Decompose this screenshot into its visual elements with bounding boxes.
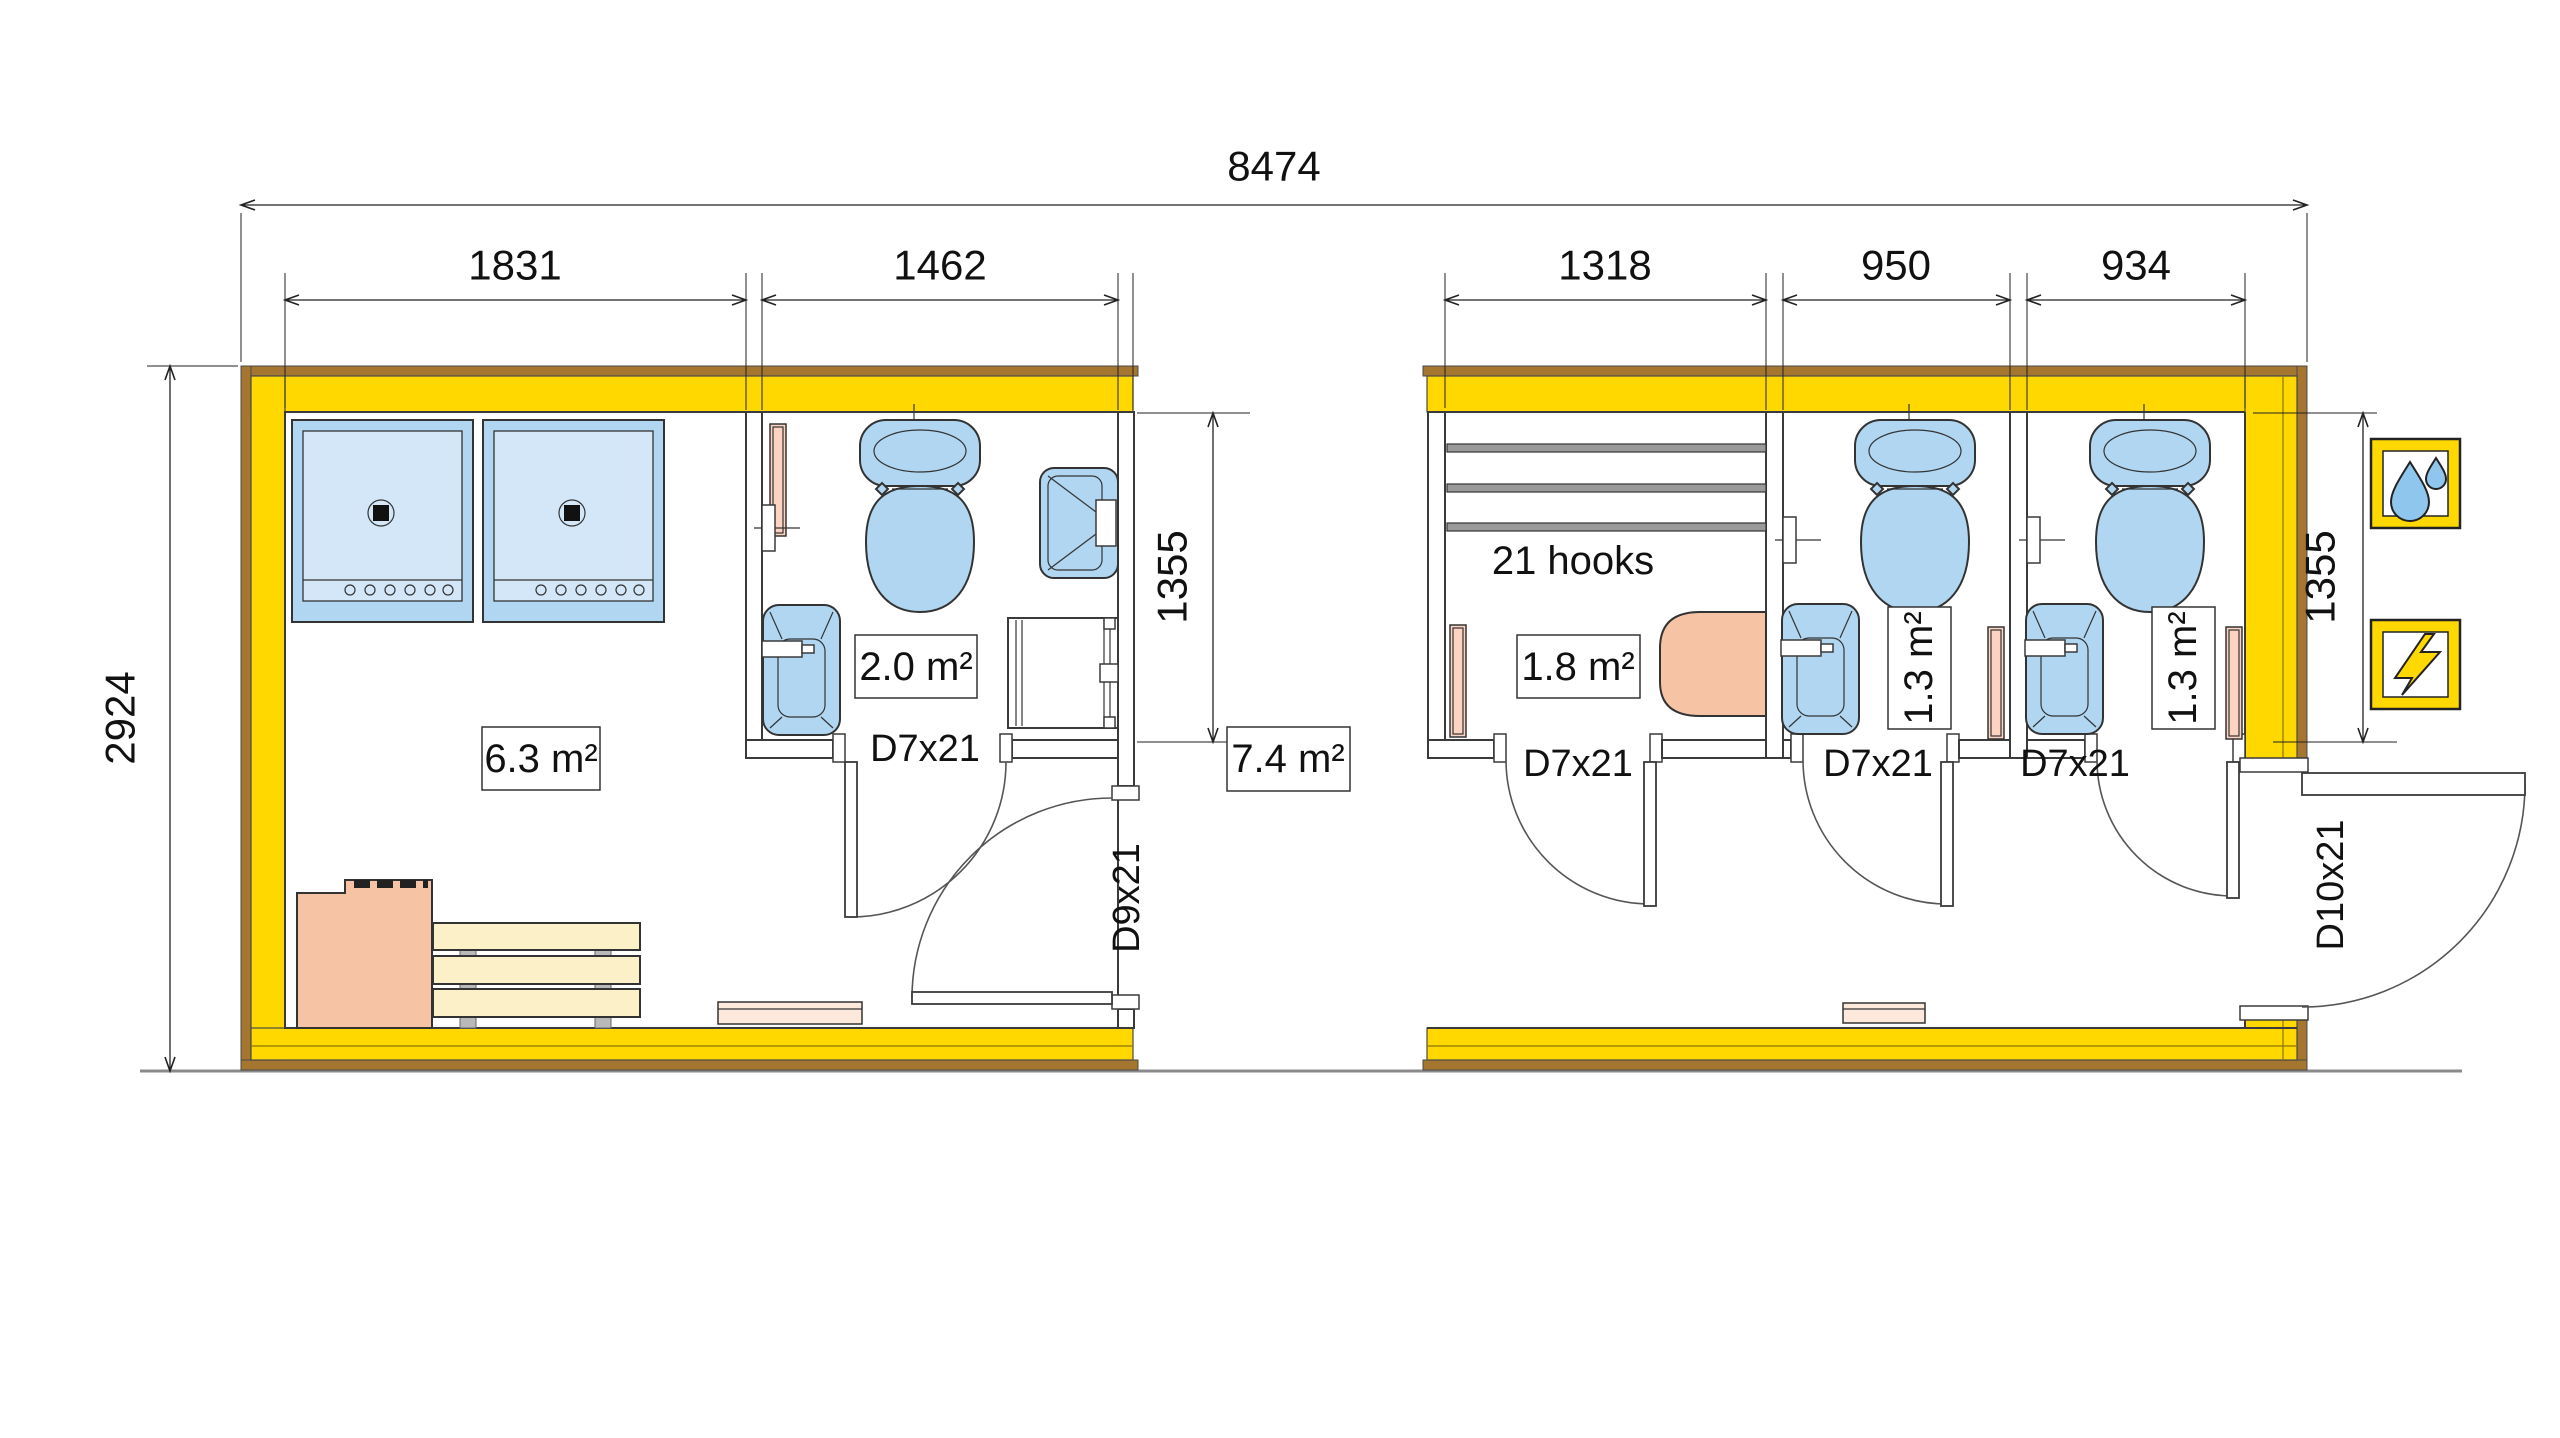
wc-cabin-1-door-label: D7x21 [1823, 743, 1933, 785]
drain-icon [373, 505, 389, 521]
shower-tray-2 [483, 420, 664, 622]
partition-wc1-wc2 [2010, 412, 2027, 758]
dim-overall-depth: 2924 [97, 671, 144, 764]
radiator-bottom-left [718, 1002, 862, 1024]
floor-plan-page: 8474 1831 1462 1318 950 934 2924 1355 [0, 0, 2560, 1438]
wc1-front-wall-left [1783, 740, 1791, 758]
changing-room-door-label: D7x21 [1523, 743, 1633, 785]
radiator-changing-room [1450, 625, 1466, 737]
dim-shower-room-width: 1831 [468, 242, 561, 289]
dim-wc-room-width: 1462 [893, 242, 986, 289]
faucet-knob [802, 645, 814, 653]
right-module-wall-top [1427, 376, 2297, 412]
wc-cabin-2-area-label: 1.3 m² [2161, 611, 2205, 724]
dim-room-depth-right: 1355 [2297, 530, 2344, 623]
left-module-joint-wall-lower [1118, 1009, 1134, 1028]
right-module-joint-wall [1428, 412, 1445, 758]
changing-room-area-label: 1.8 m² [1521, 645, 1634, 689]
faucet [2025, 640, 2065, 656]
water-connection-symbol [2371, 439, 2460, 528]
dim-room-depth-left: 1355 [1149, 530, 1196, 623]
floor-plan-drawing: 8474 1831 1462 1318 950 934 2924 1355 [0, 0, 2560, 1438]
dim-overall-width: 8474 [1227, 143, 1320, 190]
left-module [241, 366, 1139, 1070]
shower-tray-1 [292, 420, 473, 622]
inner-door-jamb-top [1112, 786, 1139, 800]
faucet-knob [1821, 644, 1833, 652]
left-module-outer-wall-bottom [241, 1060, 1138, 1070]
inner-entrance-door-label: D9x21 [1106, 843, 1148, 953]
sink-wc2 [2025, 604, 2103, 734]
changing-door-leaf [1644, 762, 1656, 906]
right-module-outer-wall-top [1423, 366, 2307, 376]
left-module-outer-wall-top [241, 366, 1138, 376]
right-module [1423, 366, 2525, 1070]
wc-door-leaf [845, 762, 857, 917]
wc-door-jamb-left [833, 734, 845, 762]
changing-room-front-wall-right [1662, 740, 1766, 758]
wc1-door-jamb-right [1947, 734, 1959, 762]
hooks-label: 21 hooks [1492, 539, 1654, 583]
right-module-wall-right-upper [2245, 376, 2297, 770]
urinal [1040, 468, 1118, 578]
bench-slat [433, 923, 640, 950]
toilet-wc-room [860, 404, 980, 612]
main-entrance-door-label: D10x21 [2310, 820, 2352, 951]
changing-door-jamb-right [1650, 734, 1662, 762]
radiator-wc2 [2226, 627, 2242, 739]
corridor-area-label: 7.4 m² [1231, 737, 1344, 781]
main-door-leaf [2302, 773, 2525, 795]
wc-cabin-1-area-label: 1.3 m² [1897, 611, 1941, 724]
right-module-outer-wall-bottom [1423, 1060, 2307, 1070]
wc-room-partition [746, 412, 762, 758]
wc-room-door-label: D7x21 [870, 728, 980, 770]
wc-room-area-label: 2.0 m² [859, 645, 972, 689]
toilet-wc2 [2090, 404, 2210, 612]
right-module-wall-bottom [1427, 1028, 2297, 1060]
heater-unit [297, 880, 432, 1028]
wc-room-front-wall-right [1012, 740, 1118, 758]
sink-wc-room [762, 605, 840, 735]
dim-changing-room-width: 1318 [1558, 242, 1651, 289]
wc-cabin-2-door-label: D7x21 [2020, 743, 2130, 785]
inner-door-jamb-bottom [1112, 995, 1139, 1009]
urinal-flush-unit [1096, 500, 1116, 546]
wc1-front-wall-right [1959, 740, 2010, 758]
left-module-wall-left [251, 376, 285, 1060]
toilet-wc1 [1855, 404, 1975, 612]
wc-door-jamb-right [1000, 734, 1012, 762]
shower-room-area-label: 6.3 m² [484, 737, 597, 781]
faucet [762, 641, 802, 657]
radiator-wc1 [1988, 627, 2004, 739]
changing-room-seat [1660, 612, 1766, 716]
wc1-door-leaf [1941, 762, 1953, 906]
drain-icon [564, 505, 580, 521]
main-door-jamb-top [2240, 758, 2308, 772]
boiler-cabinet [1008, 618, 1118, 728]
left-module-outer-wall-left [241, 366, 251, 1070]
left-module-joint-wall-upper [1118, 412, 1134, 786]
sink-wc1 [1781, 604, 1859, 734]
bench [433, 923, 640, 1028]
bench-slat [433, 956, 640, 984]
main-door-jamb-bottom [2240, 1006, 2308, 1020]
partition-changing-wc1 [1766, 412, 1783, 758]
changing-door-jamb-left [1494, 734, 1506, 762]
left-module-wall-top [251, 376, 1133, 412]
wc1-door-jamb-left [1791, 734, 1803, 762]
faucet [1781, 640, 1821, 656]
dim-wc-cabin-1-width: 950 [1861, 242, 1931, 289]
faucet-knob [2065, 644, 2077, 652]
bench-slat [433, 989, 640, 1017]
electricity-connection-symbol [2371, 620, 2460, 709]
toilet-bowl [866, 486, 974, 612]
wc2-door-leaf [2227, 762, 2239, 898]
left-module-wall-bottom [251, 1028, 1133, 1060]
wc-room-front-wall-left [746, 740, 833, 758]
changing-room-front-wall-left [1428, 740, 1494, 758]
radiator-bottom-right [1843, 1003, 1925, 1023]
inner-door-leaf [912, 992, 1112, 1004]
dim-wc-cabin-2-width: 934 [2101, 242, 2171, 289]
